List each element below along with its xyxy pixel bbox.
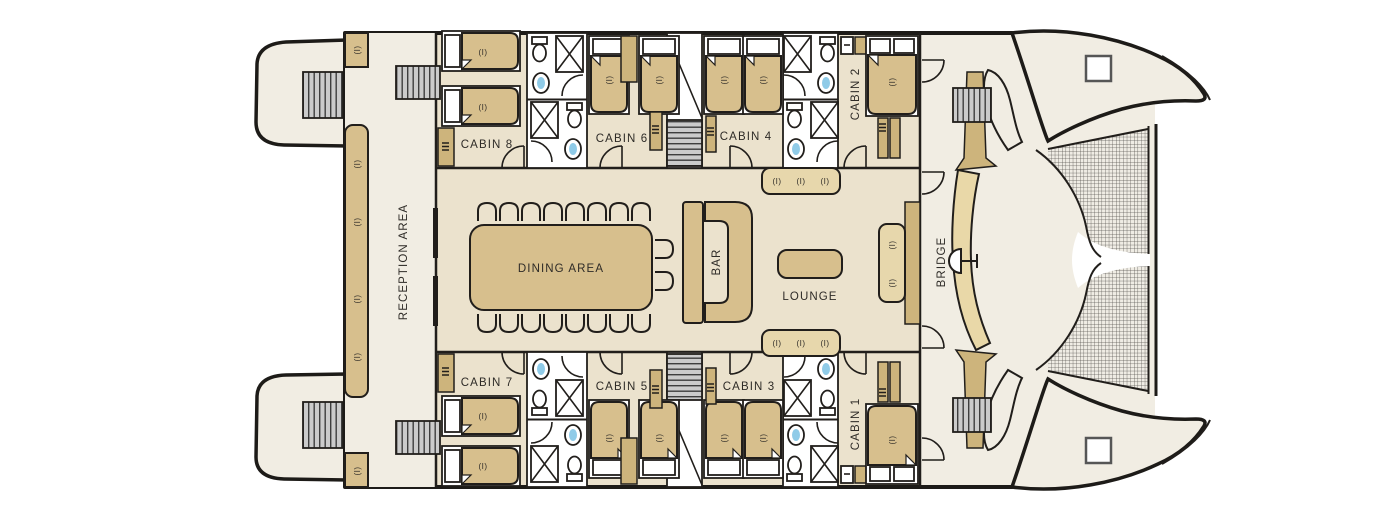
bar-label: BAR [711, 249, 723, 276]
cabin-2-label: CABIN 2 [850, 68, 862, 120]
nightstand [621, 438, 637, 484]
cabin-3-label: CABIN 3 [723, 381, 775, 393]
chair-icon [544, 314, 562, 332]
seat-marker: (I) [353, 294, 362, 303]
stern-platform-bottom [256, 374, 347, 480]
seat-marker: (I) [888, 278, 897, 287]
seat-marker: (I) [759, 75, 768, 84]
chair-icon [478, 314, 496, 332]
seat-marker: (I) [655, 75, 664, 84]
chair-icon [522, 203, 540, 221]
seat-marker: (I) [796, 339, 805, 348]
bar-counter-front [683, 202, 703, 323]
dresser [706, 116, 716, 152]
chair-icon [655, 272, 673, 290]
chair-icon [632, 314, 650, 332]
seat-marker: (I) [759, 433, 768, 442]
deck-hatch-top [1086, 56, 1111, 81]
seat-marker: (I) [478, 48, 487, 57]
chair-icon [478, 203, 496, 221]
stairs-platform-bottom [303, 402, 343, 448]
dining-label: DINING AREA [518, 263, 604, 275]
seat-marker: (I) [605, 433, 614, 442]
chair-icon [588, 203, 606, 221]
seat-marker: (I) [820, 177, 829, 186]
seat-marker: (I) [478, 103, 487, 112]
bed-icon [743, 36, 783, 114]
seat-marker: (I) [888, 435, 897, 444]
seat-marker: (I) [353, 159, 362, 168]
reception-area: RECEPTION AREA (I) (I) (I) (I) (I) (I) [345, 33, 440, 487]
seat-marker: (I) [772, 177, 781, 186]
chair-icon [566, 203, 584, 221]
seat-marker: (I) [353, 352, 362, 361]
bathroom-block-top-left [527, 33, 587, 168]
seat-marker: (I) [605, 75, 614, 84]
double-bed-icon [866, 36, 918, 116]
dresser [438, 354, 454, 392]
seat-marker: (I) [720, 433, 729, 442]
chair-icon [610, 314, 628, 332]
chair-icon [500, 314, 518, 332]
chair-icon [655, 240, 673, 258]
coffee-table [778, 250, 842, 278]
dresser [890, 362, 900, 402]
chair-icon [610, 203, 628, 221]
bridge-bench [879, 224, 905, 302]
chair-icon [566, 314, 584, 332]
seat-marker: (I) [478, 412, 487, 421]
cabin-8-label: CABIN 8 [461, 139, 513, 151]
cabin-4-label: CABIN 4 [720, 131, 772, 143]
bar-area: BAR [683, 202, 752, 323]
seat-marker: (I) [353, 217, 362, 226]
stairs-bow-top [953, 88, 991, 122]
dresser [890, 118, 900, 158]
bed-icon [704, 36, 744, 114]
stern-platform-top [256, 40, 347, 146]
bathroom-block-bottom-left [527, 352, 587, 487]
chair-icon [632, 203, 650, 221]
stairs-platform-top [303, 72, 343, 118]
stairs-bow-bottom [953, 398, 991, 432]
bathroom-block-bottom-right [783, 352, 838, 487]
stairs-reception-bottom [396, 421, 440, 454]
lounge-label: LOUNGE [782, 291, 837, 303]
seat-marker: (I) [478, 462, 487, 471]
bed-icon [639, 36, 679, 114]
seat-marker: (I) [888, 240, 897, 249]
seat-marker: (I) [353, 466, 362, 475]
seat-marker: (I) [888, 77, 897, 86]
chair-icon [522, 314, 540, 332]
bridge-label: BRIDGE [936, 237, 948, 288]
seat-marker: (I) [353, 45, 362, 54]
bathroom-block-top-right [783, 33, 838, 168]
seat-marker: (I) [796, 177, 805, 186]
deck-hatch-bottom [1086, 438, 1111, 463]
seat-marker: (I) [772, 339, 781, 348]
seat-marker: (I) [655, 433, 664, 442]
reception-label: RECEPTION AREA [398, 204, 410, 320]
dresser [706, 368, 716, 404]
cabin-8: (I) (I) CABIN 8 [438, 31, 524, 168]
stairs-reception-top [396, 66, 440, 99]
deck-plan-page: RECEPTION AREA (I) (I) (I) (I) (I) (I) [0, 0, 1400, 519]
seat-marker: (I) [820, 339, 829, 348]
wall-segment [433, 276, 438, 326]
bridge-console [905, 202, 920, 324]
cabin-1-label: CABIN 1 [850, 398, 862, 450]
cabin-5-label: CABIN 5 [596, 381, 648, 393]
nightstand [621, 36, 637, 82]
seat-marker: (I) [720, 75, 729, 84]
chair-icon [500, 203, 518, 221]
deck-plan-diagram: RECEPTION AREA (I) (I) (I) (I) (I) (I) [0, 0, 1400, 519]
dresser [650, 112, 662, 150]
chair-icon [544, 203, 562, 221]
cabin-7-label: CABIN 7 [461, 377, 513, 389]
cabin-6-label: CABIN 6 [596, 133, 648, 145]
wall-segment [433, 208, 438, 258]
chair-icon [588, 314, 606, 332]
